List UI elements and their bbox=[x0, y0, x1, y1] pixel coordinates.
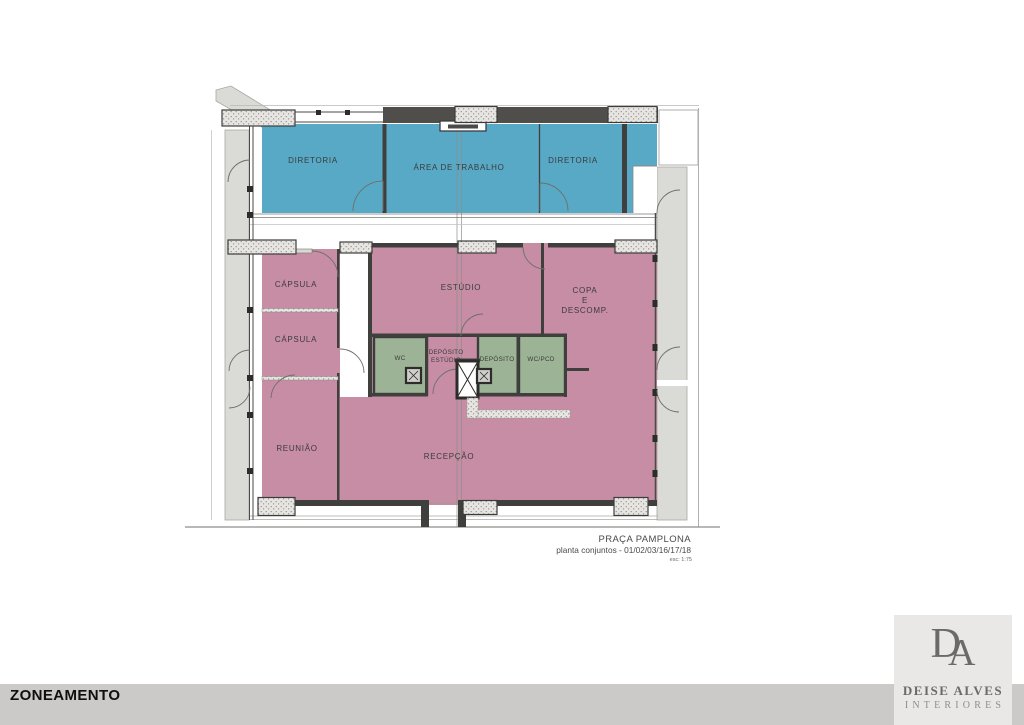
label-deposito-estudio-1: DEPÓSITO bbox=[429, 347, 464, 356]
label-copa-1: COPA bbox=[573, 286, 598, 295]
footer-bar: ZONEAMENTO bbox=[0, 684, 1024, 725]
label-deposito: DEPÓSITO bbox=[480, 354, 515, 363]
zone-green-wc bbox=[374, 337, 427, 394]
monogram-letter-a: A bbox=[948, 634, 975, 672]
zone-green-wcpcd bbox=[519, 335, 565, 395]
zone-green-deposito bbox=[478, 335, 518, 394]
label-diretoria-right: DIRETORIA bbox=[548, 156, 598, 165]
label-diretoria-left: DIRETORIA bbox=[288, 156, 338, 165]
entry-vestibule bbox=[633, 166, 657, 213]
floor-plan-drawing: DIRETORIA ÁREA DE TRABALHO DIRETORIA CÁP… bbox=[0, 0, 1024, 725]
logo-monogram: D A bbox=[931, 623, 976, 681]
reception-counter bbox=[478, 410, 570, 418]
label-capsula-1: CÁPSULA bbox=[275, 280, 317, 289]
project-title: PRAÇA PAMPLONA bbox=[598, 534, 691, 545]
drawing-scale: esc: 1:75 bbox=[670, 557, 692, 563]
logo-company-name: DEISE ALVES bbox=[903, 683, 1003, 699]
logo-tagline: INTERIORES bbox=[901, 700, 1005, 711]
label-wc: WC bbox=[394, 355, 405, 362]
label-recepcao: RECEPÇÃO bbox=[424, 452, 475, 461]
drawing-subtitle: planta conjuntos - 01/02/03/16/17/18 bbox=[556, 545, 691, 555]
reception-counter bbox=[467, 398, 478, 418]
label-deposito-estudio-2: ESTÚDIO bbox=[431, 355, 461, 364]
label-reuniao: REUNIÃO bbox=[276, 444, 317, 453]
slide-title: ZONEAMENTO bbox=[10, 687, 120, 704]
title-block: PRAÇA PAMPLONA planta conjuntos - 01/02/… bbox=[556, 534, 692, 563]
company-logo: D A DEISE ALVES INTERIORES bbox=[894, 615, 1012, 725]
slide-page: DIRETORIA ÁREA DE TRABALHO DIRETORIA CÁP… bbox=[0, 0, 1024, 725]
label-capsula-2: CÁPSULA bbox=[275, 335, 317, 344]
label-area-trabalho: ÁREA DE TRABALHO bbox=[413, 163, 504, 172]
label-wc-pcd: WC/PCD bbox=[527, 356, 554, 363]
label-estudio: ESTÚDIO bbox=[441, 283, 481, 292]
label-copa-3: DESCOMP. bbox=[561, 306, 608, 315]
label-copa-2: E bbox=[582, 296, 588, 305]
